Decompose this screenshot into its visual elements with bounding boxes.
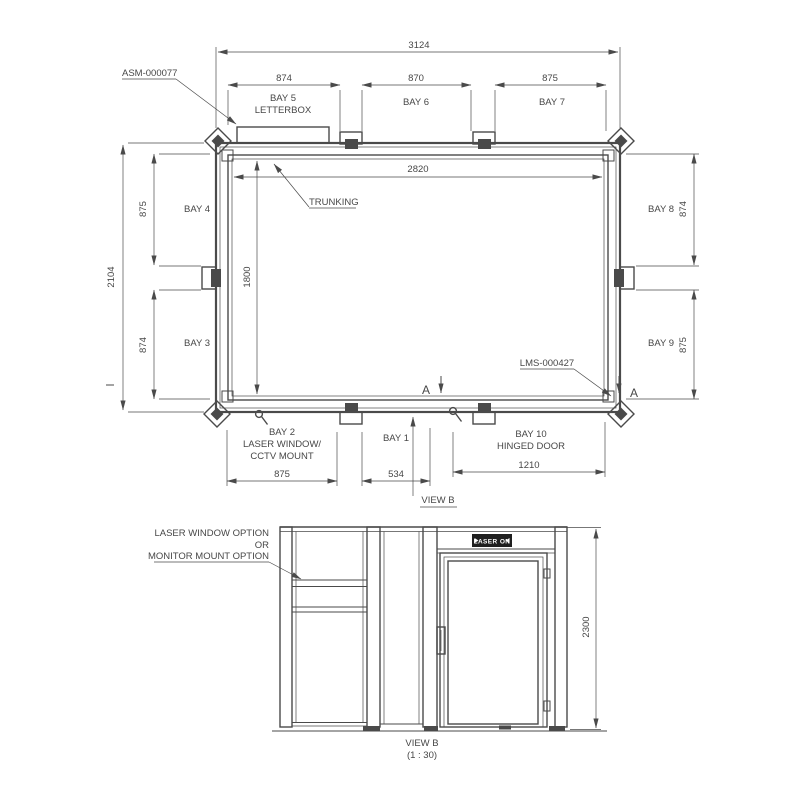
- dim-elevation-height: 2300: [567, 528, 601, 730]
- dim-elevation-height-value: 2300: [581, 616, 592, 637]
- bay2-sub2-label: CCTV MOUNT: [250, 451, 314, 462]
- bay2-sub1-label: LASER WINDOW/: [243, 439, 321, 450]
- dim-bay4-value: 875: [138, 201, 149, 217]
- door-hinge-right: [450, 408, 462, 422]
- bay2-label: BAY 2: [269, 427, 295, 438]
- dim-bay7-value: 875: [542, 73, 558, 84]
- bay9-label: BAY 9: [648, 338, 674, 349]
- callout-window-option: LASER WINDOW OPTION OR MONITOR MOUNT OPT…: [148, 528, 301, 579]
- view-b-marker: VIEW B: [413, 417, 457, 507]
- option-line1-label: LASER WINDOW OPTION: [154, 528, 269, 539]
- dim-overall-height-value: 2104: [106, 266, 117, 287]
- bay4-label: BAY 4: [184, 204, 210, 215]
- dim-right-bays: 874 875 BAY 8 BAY 9: [626, 154, 699, 399]
- plan-wall-outline: [216, 143, 620, 412]
- dim-interior-height-value: 1800: [242, 266, 253, 287]
- dim-bay1-value: 534: [388, 469, 404, 480]
- bottom-bay-labels: BAY 2 LASER WINDOW/ CCTV MOUNT BAY 1 BAY…: [243, 427, 565, 462]
- section-a-letter: A: [630, 386, 638, 400]
- top-bay-labels: BAY 5 LETTERBOX BAY 6 BAY 7: [255, 93, 565, 116]
- elevation-view: LASER ON 2300: [148, 527, 607, 761]
- section-marker-a-right: A: [619, 376, 638, 400]
- wall-joint-bottom-2: [473, 403, 495, 424]
- bay3-label: BAY 3: [184, 338, 210, 349]
- elevation-view-title: VIEW B (1 : 30): [405, 738, 438, 761]
- dim-bay3-value: 874: [138, 337, 149, 353]
- bay7-label: BAY 7: [539, 97, 565, 108]
- laser-on-sign: LASER ON: [472, 534, 512, 547]
- dim-overall-width-value: 3124: [408, 40, 429, 51]
- dim-interior-width: 2820: [234, 164, 602, 177]
- option-line3-label: MONITOR MOUNT OPTION: [148, 551, 269, 562]
- callout-trunking: TRUNKING: [274, 164, 359, 208]
- option-line2-label: OR: [255, 540, 269, 551]
- dim-left-bays: 875 874 BAY 4 BAY 3: [138, 154, 210, 399]
- section-a-letter: A: [422, 383, 430, 397]
- bay8-label: BAY 8: [648, 204, 674, 215]
- bay10-sub-label: HINGED DOOR: [497, 441, 565, 452]
- window-panel-rails: [292, 580, 423, 726]
- technical-drawing-canvas: 3124 874 870 875 BAY 5 LETTERBOX BAY 6 B…: [0, 0, 800, 800]
- letterbox-outline: [237, 127, 329, 143]
- dim-overall-height: 2104: [106, 143, 204, 412]
- dim-interior-height: 1800: [242, 161, 257, 394]
- bay6-label: BAY 6: [403, 97, 429, 108]
- lms-reference-label: LMS-000427: [520, 358, 574, 369]
- plan-view: 3124 874 870 875 BAY 5 LETTERBOX BAY 6 B…: [106, 40, 699, 507]
- laser-on-sign-label: LASER ON: [474, 539, 511, 546]
- bay10-label: BAY 10: [515, 429, 546, 440]
- elevation-view-label: VIEW B: [405, 738, 438, 749]
- wall-joint-top-1: [340, 132, 362, 149]
- dim-bay6-value: 870: [408, 73, 424, 84]
- bay1-label: BAY 1: [383, 433, 409, 444]
- trunking-label: TRUNKING: [309, 197, 359, 208]
- wall-joint-top-2: [473, 132, 495, 149]
- bay5-sub-label: LETTERBOX: [255, 105, 312, 116]
- callout-lms-reference: LMS-000427: [520, 358, 611, 396]
- asm-reference-label: ASM-000077: [122, 68, 177, 79]
- wall-joint-bottom-1: [340, 403, 362, 424]
- dim-bay9-value: 875: [678, 337, 689, 353]
- view-b-label: VIEW B: [421, 495, 454, 506]
- section-marker-a-left: A: [422, 376, 441, 397]
- dim-bay5-value: 874: [276, 73, 292, 84]
- dim-interior-width-value: 2820: [407, 164, 428, 175]
- bay5-label: BAY 5: [270, 93, 296, 104]
- elevation-view-scale: (1 : 30): [407, 750, 437, 761]
- callout-asm-reference: ASM-000077: [122, 68, 236, 124]
- wall-joint-left: [202, 267, 221, 289]
- dim-bay8-value: 874: [678, 201, 689, 217]
- dim-bay2-value: 875: [274, 469, 290, 480]
- dim-bay10-value: 1210: [518, 460, 539, 471]
- door-threshold: [499, 726, 511, 730]
- wall-joint-right: [614, 267, 634, 289]
- hinged-door: [437, 553, 550, 730]
